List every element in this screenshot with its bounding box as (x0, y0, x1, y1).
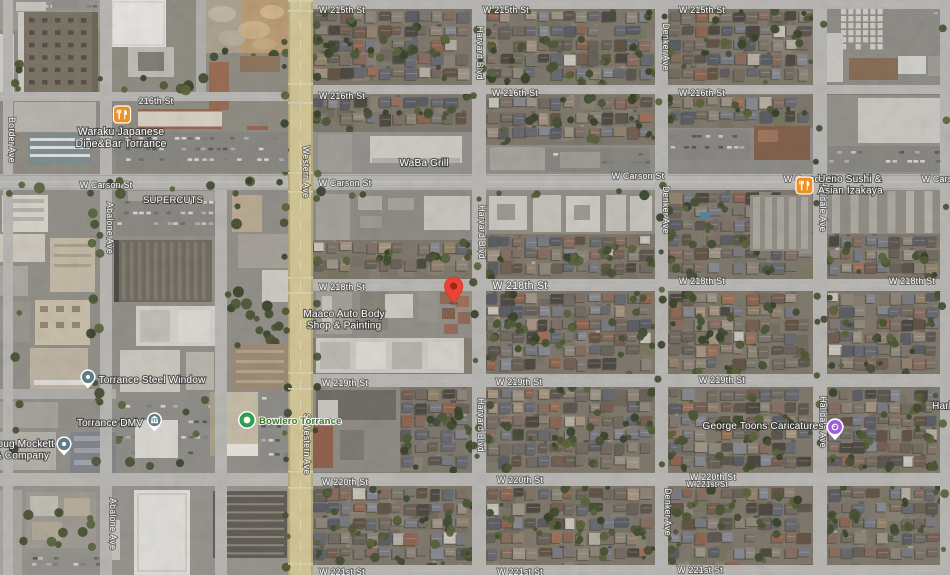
svg-text:W 216th St: W 216th St (679, 88, 725, 98)
svg-text:Waraku Japanese: Waraku Japanese (78, 126, 165, 138)
svg-text:W 220th St: W 220th St (497, 475, 543, 485)
svg-text:W Carson St: W Carson St (922, 174, 950, 184)
svg-text:George Toons Caricatures: George Toons Caricatures (702, 421, 823, 432)
svg-text:Denker Ave: Denker Ave (663, 488, 673, 536)
svg-text:& Company: & Company (0, 450, 50, 461)
svg-text:W 221st St: W 221st St (686, 480, 728, 489)
svg-text:W 215th St: W 215th St (679, 5, 725, 15)
svg-text:Ueno Sushi &: Ueno Sushi & (818, 174, 882, 185)
svg-text:W Carson St: W Carson St (80, 180, 133, 190)
svg-text:SUPERCUTS: SUPERCUTS (143, 195, 203, 206)
svg-text:Abalone Ave: Abalone Ave (105, 202, 115, 254)
svg-text:Asian Izakaya: Asian Izakaya (818, 185, 883, 196)
svg-text:Harvard Blvd: Harvard Blvd (476, 398, 486, 452)
svg-text:Abalone Ave: Abalone Ave (108, 498, 118, 550)
svg-text:Dine&Bar Torrance: Dine&Bar Torrance (75, 138, 166, 150)
svg-text:Harvard Blvd: Harvard Blvd (477, 205, 487, 259)
svg-text:Shop & Painting: Shop & Painting (307, 320, 382, 331)
svg-text:WaBa Grill: WaBa Grill (399, 158, 448, 169)
svg-text:W Carson St: W Carson St (319, 178, 372, 188)
svg-text:Border Ave: Border Ave (7, 117, 17, 163)
svg-text:Torrance Steel Window: Torrance Steel Window (99, 375, 206, 386)
svg-text:W 215th St: W 215th St (319, 5, 365, 15)
svg-text:Maaco Auto Body: Maaco Auto Body (303, 309, 385, 320)
svg-text:Denker Ave: Denker Ave (661, 23, 671, 71)
svg-text:W 221st St: W 221st St (497, 567, 543, 575)
svg-text:Torrance DMV: Torrance DMV (77, 418, 143, 429)
svg-text:W 216th St: W 216th St (492, 88, 538, 98)
svg-text:Bowlero Torrance: Bowlero Torrance (259, 416, 341, 427)
svg-text:216th St: 216th St (139, 96, 174, 106)
svg-text:Harvard Blvd: Harvard Blvd (475, 26, 485, 80)
svg-text:W 221st St: W 221st St (319, 567, 365, 575)
svg-text:Denker Ave: Denker Ave (661, 186, 671, 234)
svg-text:W 221st St: W 221st St (677, 565, 723, 575)
svg-text:W 219th St: W 219th St (699, 375, 745, 385)
svg-text:W 215th St: W 215th St (483, 5, 529, 15)
svg-text:W 216th St: W 216th St (319, 91, 365, 101)
svg-text:W 218th St: W 218th St (493, 280, 548, 292)
svg-text:W 219th St: W 219th St (322, 378, 368, 388)
svg-text:Western Ave: Western Ave (301, 146, 311, 198)
svg-text:W 218th St: W 218th St (319, 282, 365, 292)
svg-text:W 218th St: W 218th St (889, 276, 935, 286)
svg-text:W 218th St: W 218th St (679, 276, 725, 286)
svg-text:Harbor: Harbor (932, 401, 950, 412)
svg-text:W 219th St: W 219th St (496, 377, 542, 387)
svg-text:W Carson St: W Carson St (612, 171, 665, 181)
svg-text:W 220th St: W 220th St (322, 477, 368, 487)
svg-text:Doug Mockett: Doug Mockett (0, 439, 54, 450)
